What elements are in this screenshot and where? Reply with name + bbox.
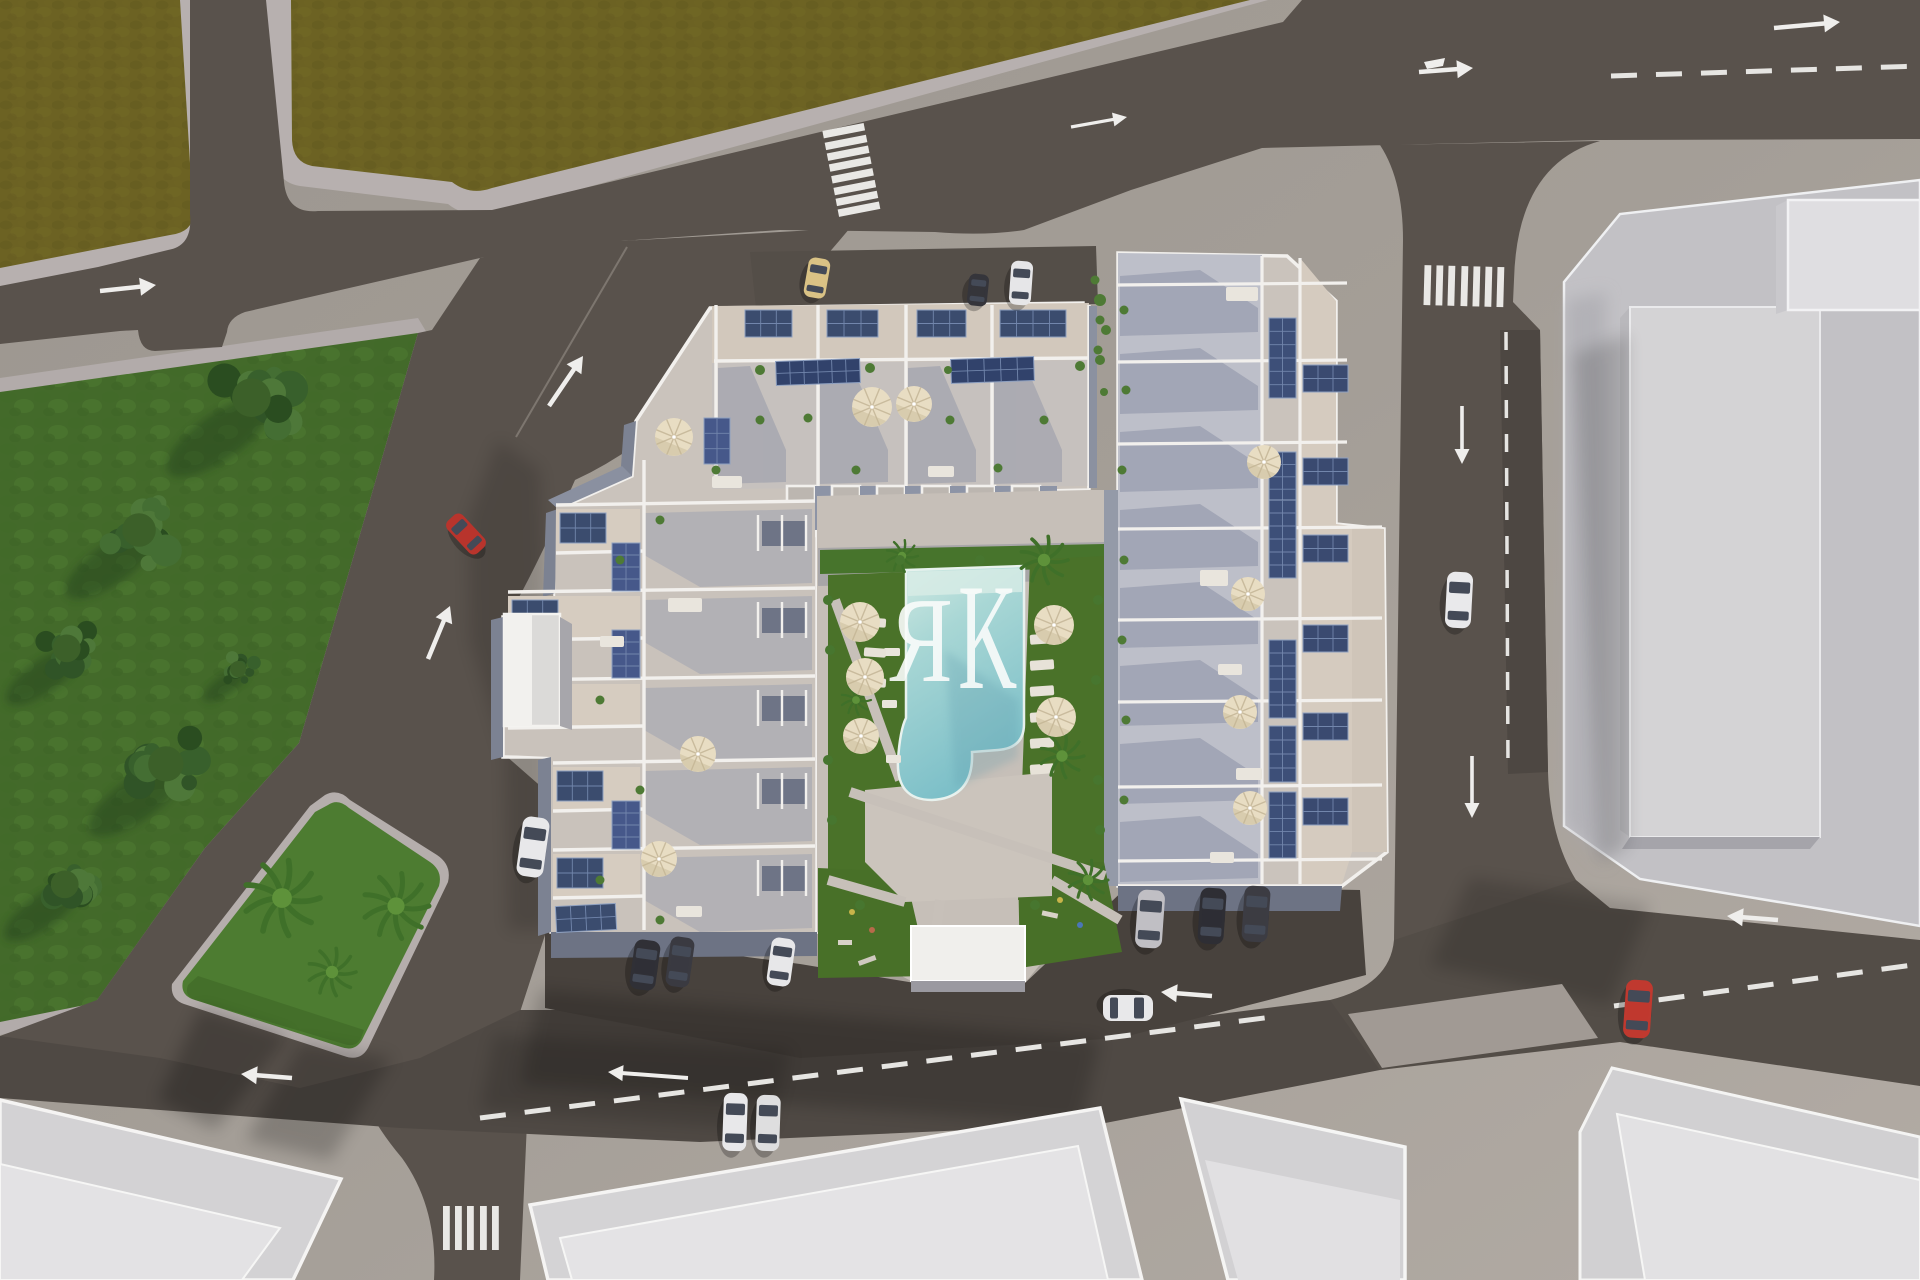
svg-text:K: K <box>958 554 1017 722</box>
svg-text:Я: Я <box>889 573 952 708</box>
